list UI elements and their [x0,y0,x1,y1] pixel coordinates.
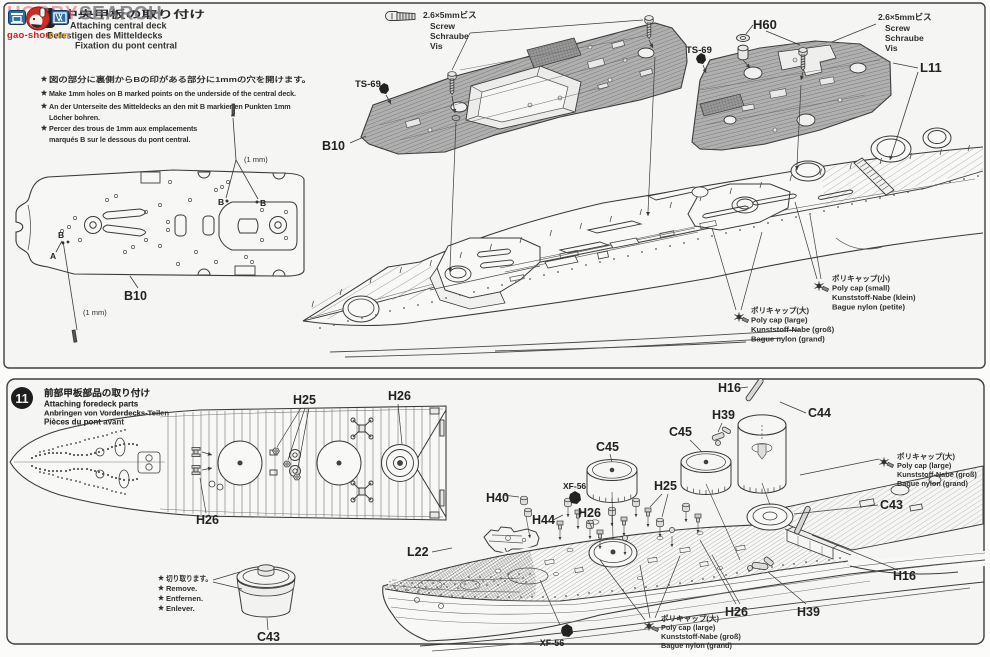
svg-text:C43: C43 [257,630,280,644]
svg-text:ポリキャップ(大): ポリキャップ(大) [661,614,720,623]
svg-text:Löcher bohren.: Löcher bohren. [49,113,100,122]
svg-text:H39: H39 [797,605,820,619]
svg-text:H60: H60 [753,17,777,32]
svg-text:(1 mm): (1 mm) [244,155,268,164]
svg-text:SEARCH: SEARCH [79,4,162,25]
svg-text:Schraube: Schraube [430,31,469,41]
svg-text:H39: H39 [712,408,735,422]
svg-text:(1 mm): (1 mm) [83,308,107,317]
svg-text:Vis: Vis [430,41,443,51]
svg-text:Bague nylon (grand): Bague nylon (grand) [751,335,825,344]
svg-text:ポリキャップ(大): ポリキャップ(大) [751,305,809,315]
svg-text:Remove.: Remove. [166,584,197,593]
svg-text:切り取ります。: 切り取ります。 [166,573,212,583]
svg-text:B: B [58,230,64,240]
svg-text:Kunststoff-Nabe (groß): Kunststoff-Nabe (groß) [751,325,835,334]
svg-text:2.6×5mmビス: 2.6×5mmビス [878,12,932,22]
svg-text:B10: B10 [124,289,147,303]
svg-text:B: B [218,197,224,207]
svg-text:TS-69: TS-69 [355,79,381,90]
svg-text:L11: L11 [920,60,942,75]
svg-text:L22: L22 [407,545,429,559]
svg-text:Entfernen.: Entfernen. [166,594,203,603]
svg-text:An der Unterseite des Mittelde: An der Unterseite des Mitteldecks an den… [49,102,291,111]
svg-text:.com: .com [46,30,69,41]
svg-text:Kunststoff-Nabe (klein): Kunststoff-Nabe (klein) [832,293,916,302]
svg-text:XF-56: XF-56 [540,638,565,648]
svg-text:Vis: Vis [885,43,898,53]
svg-text:A: A [50,251,56,261]
svg-text:H26: H26 [578,506,601,520]
svg-text:B10: B10 [322,139,345,153]
svg-text:Make 1mm holes on B marked poi: Make 1mm holes on B marked points on the… [49,89,296,98]
svg-text:図の部分に裏側からBの印がある部分に1mmの穴を開けます。: 図の部分に裏側からBの印がある部分に1mmの穴を開けます。 [49,75,311,84]
svg-text:Bague nylon (petite): Bague nylon (petite) [832,303,905,312]
svg-text:Bague nylon (grand): Bague nylon (grand) [897,479,969,488]
svg-text:2.6×5mmビス: 2.6×5mmビス [423,10,477,20]
svg-text:Kunststoff-Nabe (groß): Kunststoff-Nabe (groß) [897,470,977,479]
svg-text:B: B [260,198,266,208]
svg-text:ポリキャップ(小): ポリキャップ(小) [832,273,890,283]
svg-text:Percer des trous de 1mm aux em: Percer des trous de 1mm aux emplacements [49,124,197,133]
svg-text:11: 11 [15,392,28,406]
svg-text:Anbringen von Vorderdecks-Teil: Anbringen von Vorderdecks-Teilen [44,409,169,418]
svg-text:Poly cap (large): Poly cap (large) [897,461,952,470]
svg-text:C45: C45 [596,440,619,454]
svg-text:Enlever.: Enlever. [166,604,195,613]
svg-text:Kunststoff-Nabe (groß): Kunststoff-Nabe (groß) [661,632,741,641]
svg-text:Attaching foredeck parts: Attaching foredeck parts [44,400,139,409]
svg-text:XF-56: XF-56 [563,481,586,491]
svg-text:C43: C43 [880,498,903,512]
svg-text:H25: H25 [654,479,677,493]
svg-text:H26: H26 [725,605,748,619]
svg-text:H16: H16 [893,569,916,583]
svg-text:H26: H26 [196,513,219,527]
svg-text:H16: H16 [718,381,741,395]
svg-text:H25: H25 [293,393,316,407]
svg-text:Poly cap (large): Poly cap (large) [751,316,808,325]
svg-text:H26: H26 [388,389,411,403]
svg-text:Schraube: Schraube [885,33,924,43]
svg-text:marqués B sur le dessous du po: marqués B sur le dessous du pont central… [49,135,190,144]
svg-text:C45: C45 [669,425,692,439]
svg-text:Bague nylon (grand): Bague nylon (grand) [661,641,733,650]
svg-text:ポリキャップ(大): ポリキャップ(大) [897,452,956,461]
svg-text:Pièces du pont avant: Pièces du pont avant [44,418,124,427]
svg-text:Screw: Screw [430,21,455,31]
svg-text:C44: C44 [808,406,831,420]
svg-text:TS-69: TS-69 [686,45,712,56]
svg-text:H40: H40 [486,491,509,505]
svg-text:Poly cap (small): Poly cap (small) [832,284,890,293]
svg-text:gao-shou: gao-shou [7,30,51,41]
svg-text:前部甲板部品の取り付け: 前部甲板部品の取り付け [44,387,150,398]
svg-text:Screw: Screw [885,23,910,33]
svg-text:H44: H44 [532,513,555,527]
svg-text:Fixation du pont central: Fixation du pont central [75,41,177,51]
svg-text:Poly cap (large): Poly cap (large) [661,623,716,632]
